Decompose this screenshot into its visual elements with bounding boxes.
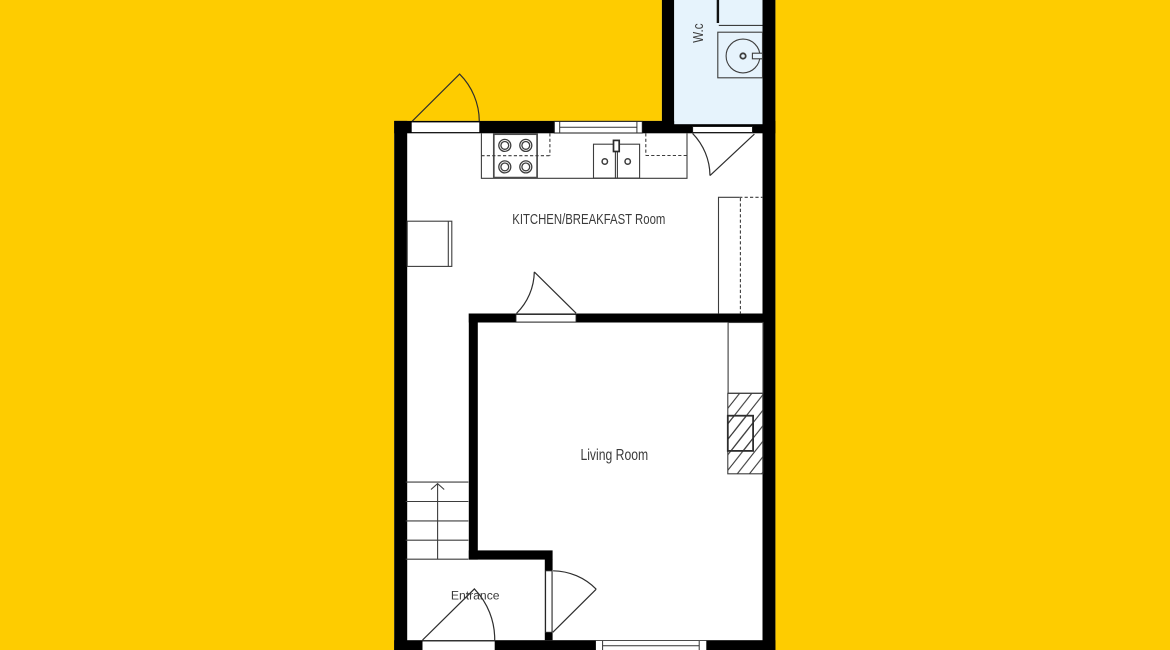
svg-text:Entrance: Entrance: [451, 591, 500, 603]
svg-text:W.c: W.c: [690, 23, 707, 43]
svg-text:Living Room: Living Room: [580, 447, 648, 464]
svg-text:KITCHEN/BREAKFAST Room: KITCHEN/BREAKFAST Room: [512, 211, 665, 228]
